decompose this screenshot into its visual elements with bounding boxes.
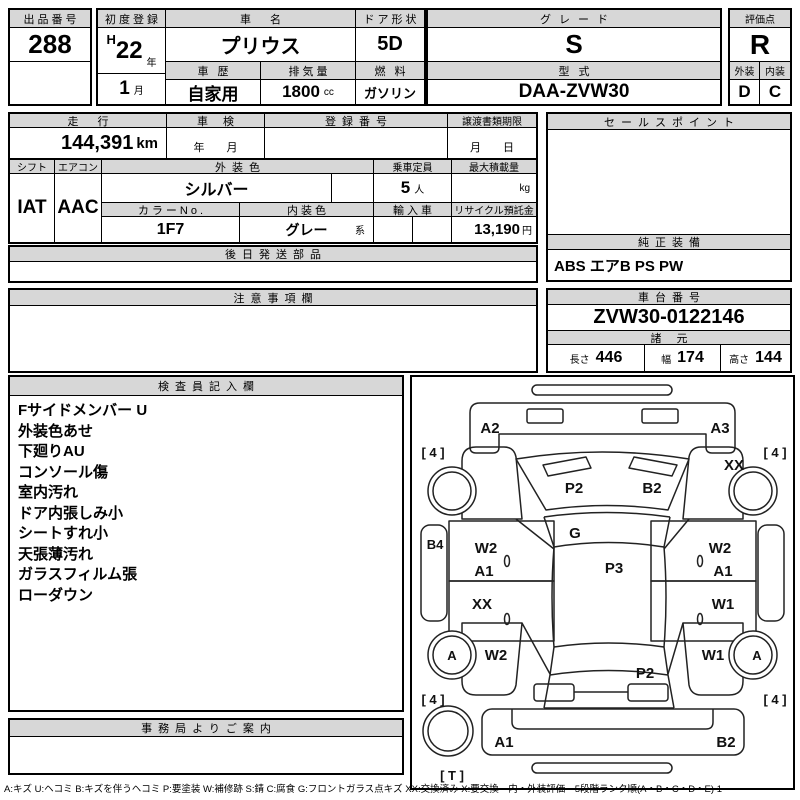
recycle-value: 13,190円 <box>452 217 536 242</box>
inspector-note-item: シートすれ小 <box>18 524 396 545</box>
caution-box: 注意事項欄 <box>8 288 538 373</box>
fuel-header: 燃 料 <box>356 62 424 80</box>
lot-number-value: 288 <box>10 28 90 62</box>
ext-color-sub-cell <box>332 174 374 203</box>
deadline-value: 月 日 <box>448 128 536 158</box>
damage-code-P2: P2 <box>565 480 583 497</box>
damage-code-B4: B4 <box>427 537 444 552</box>
damage-code-B2: B2 <box>642 480 661 497</box>
inspector-note-item: ローダウン <box>18 586 396 607</box>
late-parts-value <box>10 262 536 281</box>
ext-color-header: 外装色 <box>102 160 374 174</box>
first-reg-month: 1月 <box>98 74 166 104</box>
first-reg-year: H22年 <box>98 28 166 74</box>
exterior-value: D <box>730 80 760 104</box>
inspector-notes-list: Fサイドメンバー U外装色あせ下廻りAUコンソール傷室内汚れドア内張しみ小シート… <box>18 401 396 606</box>
damage-code-P3: P3 <box>605 560 623 577</box>
office-box: 事務局よりご案内 <box>8 718 404 775</box>
office-value <box>10 737 402 773</box>
damage-code-P2: P2 <box>636 665 654 682</box>
damage-code-W1: W1 <box>712 596 735 613</box>
displacement-header: 排気量 <box>261 62 356 80</box>
shift-header: シフト <box>10 160 55 174</box>
damage-code-W1: W1 <box>702 647 725 664</box>
ext-color-value: シルバー <box>102 174 332 203</box>
damage-code-B2: B2 <box>716 734 735 751</box>
spec-width: 幅174 <box>645 345 721 371</box>
equipment-header: 純正装備 <box>548 235 790 250</box>
car-damage-diagram: A2A3[ 4 ][ 4 ]XXP2B2B4GW2A1W2A1P3XXW1AW2… <box>412 377 793 788</box>
spec-header: 諸 元 <box>548 331 790 345</box>
history-header: 車 歴 <box>166 62 261 80</box>
damage-code-A1: A1 <box>494 734 513 751</box>
damage-code-A1: A1 <box>713 563 732 580</box>
score-box: 評価点 R 外装 内装 D C <box>728 8 792 106</box>
damage-code-W2: W2 <box>709 540 732 557</box>
damage-code-W2: W2 <box>485 647 508 664</box>
displacement-value: 1800cc <box>261 80 356 104</box>
shift-value: IAT <box>10 174 55 242</box>
grade-header: グレード <box>428 10 720 28</box>
damage-code-A: A <box>447 648 457 663</box>
int-color-suffix: 系 <box>355 222 365 237</box>
payload-value: kg <box>452 174 536 203</box>
interior-header: 内装 <box>760 62 790 80</box>
recycle-header: リサイクル預託金 <box>452 203 536 217</box>
damage-code-XX: XX <box>472 596 492 613</box>
damage-code-4: [ 4 ] <box>421 692 444 707</box>
late-parts-box: 後日発送部品 <box>8 245 538 283</box>
int-color-value: グレー 系 <box>240 217 374 242</box>
lot-number-header: 出品番号 <box>10 10 90 28</box>
grade-model-box: グレード S 型 式 DAA-ZVW30 <box>426 8 722 106</box>
chassis-header: 車台番号 <box>548 290 790 305</box>
model-value: DAA-ZVW30 <box>428 80 720 104</box>
sales-point-header: セールスポイント <box>548 114 790 130</box>
capacity-header: 乗車定員 <box>374 160 452 174</box>
int-color-header: 内装色 <box>240 203 374 217</box>
first-reg-era: H <box>106 32 115 47</box>
inspector-note-item: 室内汚れ <box>18 483 396 504</box>
damage-diagram-box: A2A3[ 4 ][ 4 ]XXP2B2B4GW2A1W2A1P3XXW1AW2… <box>410 375 795 790</box>
caution-value <box>10 306 536 371</box>
door-header: ドア形状 <box>356 10 424 28</box>
auction-sheet: 出品番号 288 初度登録 H22年 1月 車 名 プリウス 車 歴 排気量 自… <box>0 0 800 800</box>
damage-code-A3: A3 <box>710 420 729 437</box>
capacity-value: 5人 <box>374 174 452 203</box>
damage-code-XX: XX <box>724 457 744 474</box>
mileage-box: 走 行 車 検 登録番号 譲渡書類期限 144,391km 年 月 月 日 <box>8 112 538 160</box>
registration-name-box: 初度登録 H22年 1月 車 名 プリウス 車 歴 排気量 自家用 1800cc… <box>96 8 426 106</box>
inspector-header: 検査員記入欄 <box>10 377 402 396</box>
grade-value: S <box>428 28 720 62</box>
model-header: 型 式 <box>428 62 720 80</box>
spec-height: 高さ144 <box>721 345 790 371</box>
import-value-cell-1 <box>374 217 413 242</box>
shaken-header: 車 検 <box>167 114 265 128</box>
lot-number-box: 出品番号 288 <box>8 8 92 106</box>
import-value-cell-2 <box>413 217 452 242</box>
interior-value: C <box>760 80 790 104</box>
aircon-header: エアコン <box>55 160 102 174</box>
fuel-value: ガソリン <box>356 80 424 104</box>
deadline-header: 譲渡書類期限 <box>448 114 536 128</box>
color-no-header: カラーNo. <box>102 203 240 217</box>
shaken-value: 年 月 <box>167 128 265 158</box>
door-value: 5D <box>356 28 424 62</box>
inspector-note-item: ガラスフィルム張 <box>18 565 396 586</box>
color-no-value: 1F7 <box>102 217 240 242</box>
import-header: 輸入車 <box>374 203 452 217</box>
mileage-value: 144,391km <box>10 128 167 158</box>
shift-color-box: シフト エアコン IAT AAC 外装色 乗車定員 最大積載量 シルバー 5人 … <box>8 158 538 244</box>
damage-code-4: [ 4 ] <box>763 445 786 460</box>
car-name-header: 車 名 <box>166 10 356 28</box>
damage-code-A2: A2 <box>480 420 499 437</box>
regno-value <box>265 128 448 158</box>
chassis-box: 車台番号 ZVW30-0122146 諸 元 長さ446 幅174 高さ144 <box>546 288 792 373</box>
aircon-value: AAC <box>55 174 102 242</box>
inspector-box: 検査員記入欄 Fサイドメンバー U外装色あせ下廻りAUコンソール傷室内汚れドア内… <box>8 375 404 712</box>
damage-code-G: G <box>569 525 581 542</box>
sales-point-box: セールスポイント 純正装備 ABS エアB PS PW <box>546 112 792 282</box>
score-value: R <box>730 28 790 62</box>
car-name-value: プリウス <box>166 28 356 62</box>
late-parts-header: 後日発送部品 <box>10 247 536 262</box>
damage-code-4: [ 4 ] <box>421 445 444 460</box>
equipment-value: ABS エアB PS PW <box>548 250 790 280</box>
chassis-value: ZVW30-0122146 <box>548 305 790 331</box>
damage-code-W2: W2 <box>475 540 498 557</box>
caution-header: 注意事項欄 <box>10 290 536 306</box>
damage-code-A1: A1 <box>474 563 493 580</box>
inspector-note-item: 天張薄汚れ <box>18 545 396 566</box>
inspector-note-item: 下廻りAU <box>18 442 396 463</box>
inspector-note-item: コンソール傷 <box>18 463 396 484</box>
exterior-header: 外装 <box>730 62 760 80</box>
damage-code-A: A <box>752 648 762 663</box>
damage-code-4: [ 4 ] <box>763 692 786 707</box>
payload-header: 最大積載量 <box>452 160 536 174</box>
sales-point-value <box>548 130 790 235</box>
first-reg-header: 初度登録 <box>98 10 166 28</box>
history-value: 自家用 <box>166 80 261 104</box>
score-header: 評価点 <box>730 10 790 28</box>
inspector-note-item: ドア内張しみ小 <box>18 504 396 525</box>
regno-header: 登録番号 <box>265 114 448 128</box>
inspector-note-item: Fサイドメンバー U <box>18 401 396 422</box>
office-header: 事務局よりご案内 <box>10 720 402 737</box>
legend-text: A:キズ U:ヘコミ B:キズを伴うヘコミ P:要塗装 W:補修跡 S:錆 C:… <box>4 781 798 795</box>
mileage-header: 走 行 <box>10 114 167 128</box>
spec-length: 長さ446 <box>548 345 645 371</box>
inspector-note-item: 外装色あせ <box>18 422 396 443</box>
